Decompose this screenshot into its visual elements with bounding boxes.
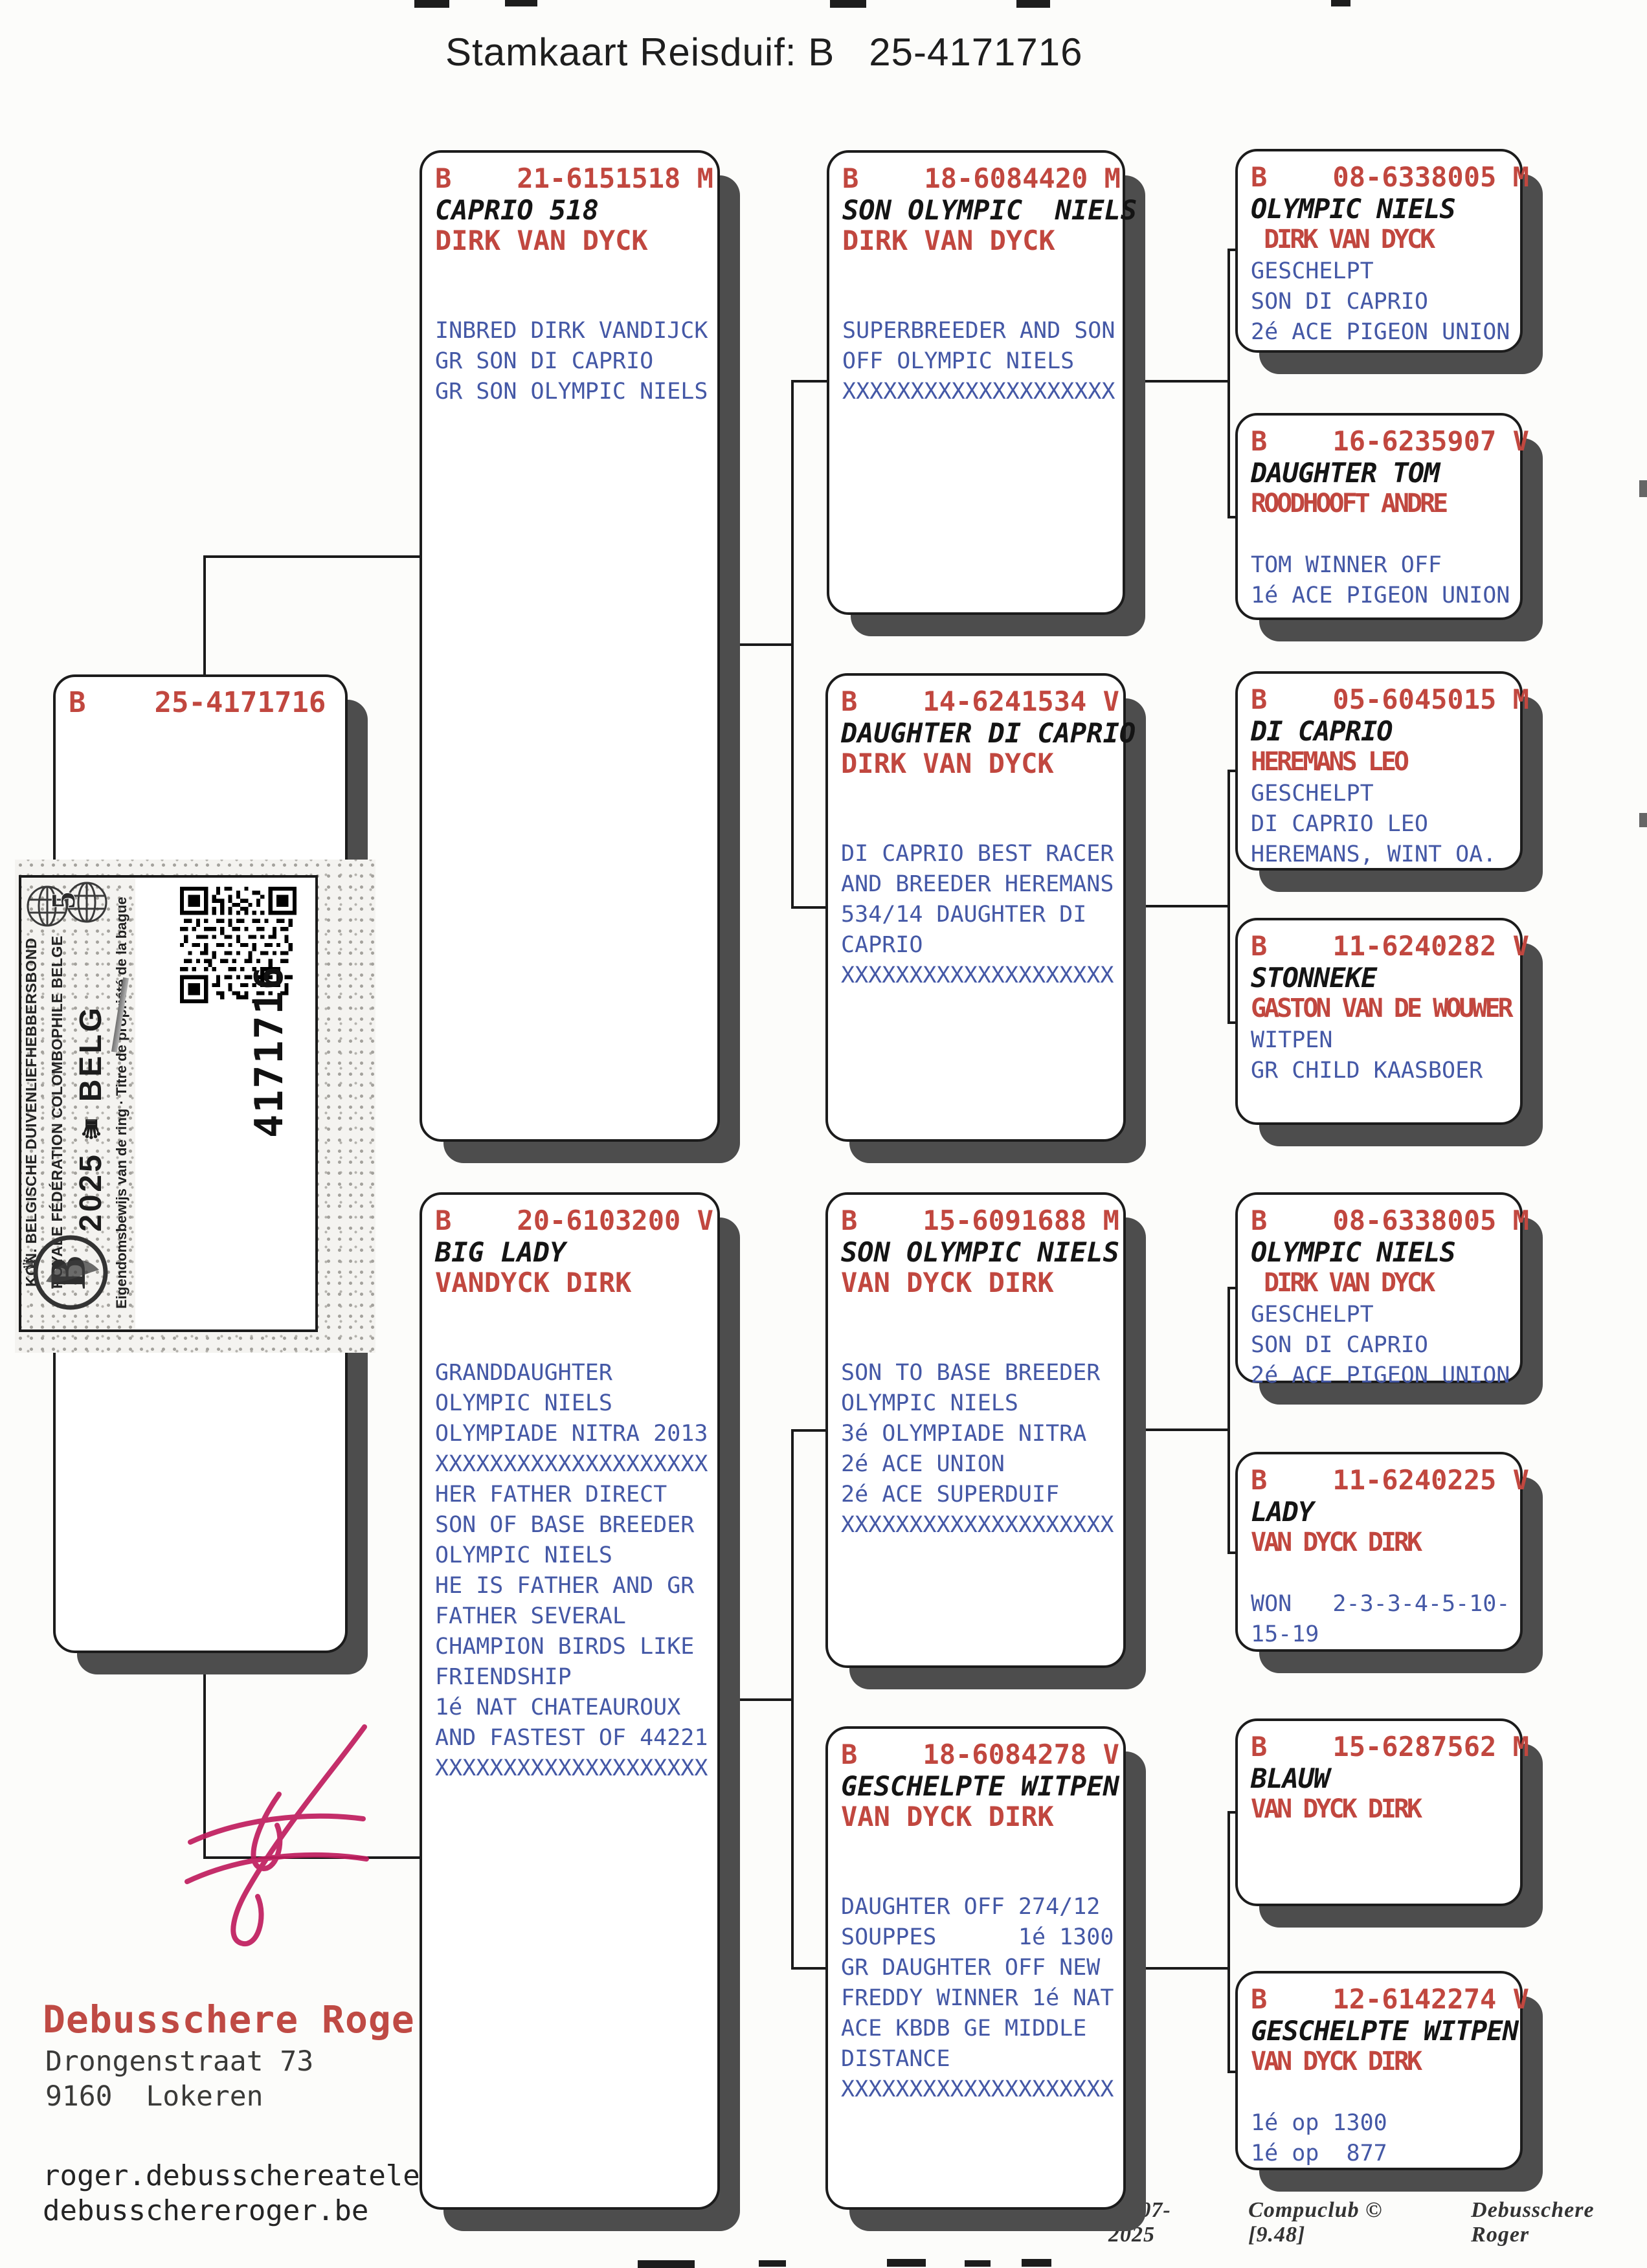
ring-number: B 14-6241534 V — [841, 685, 1110, 718]
scan-artifact — [830, 0, 866, 8]
connector-line — [1227, 770, 1230, 1024]
pigeon-name: SON OLYMPIC NIELS — [841, 1238, 1110, 1267]
ring-number: B 08-6338005 M — [1251, 161, 1507, 194]
pigeon-notes: INBRED DIRK VANDIJCK GR SON DI CAPRIO GR… — [435, 316, 704, 407]
fancier-name: GASTON VAN DE WOUWER — [1251, 993, 1507, 1024]
connector-line — [791, 1429, 794, 1970]
scan-artifact — [1022, 2259, 1051, 2267]
connector-line — [1227, 249, 1230, 518]
pigeon-notes: DAUGHTER OFF 274/12 SOUPPES 1é 1300 GR D… — [841, 1892, 1110, 2105]
fancier-name: VAN DYCK DIRK — [1251, 2046, 1507, 2077]
owner-street: Drongenstraat 73 — [45, 2045, 313, 2078]
pedigree-box-ggp8: B 12-6142274 V GESCHELPTE WITPEN VAN DYC… — [1235, 1971, 1523, 2170]
pedigree-box-ggp1: B 08-6338005 M OLYMPIC NIELS DIRK VAN DY… — [1235, 149, 1523, 353]
ring-number: B 05-6045015 M — [1251, 683, 1507, 717]
fancier-name: VAN DYCK DIRK — [1251, 1527, 1507, 1558]
federation-b-roundel-icon: B ♛ — [20, 1219, 111, 1323]
fancier-name: ROODHOOFT ANDRE — [1251, 488, 1507, 519]
scan-artifact — [965, 2260, 991, 2267]
fancier-name: VAN DYCK DIRK — [841, 1267, 1110, 1298]
pigeon-notes: 1é op 1300 1é op 877 — [1251, 2108, 1507, 2169]
pigeon-name: DI CAPRIO — [1251, 717, 1507, 746]
pigeon-notes: WON 2-3-3-4-5-10- 15-19 — [1251, 1589, 1507, 1650]
pigeon-notes: SUPERBREEDER AND SON OFF OLYMPIC NIELS X… — [842, 316, 1110, 407]
ring-number-vertical: 4171716 — [247, 976, 292, 1138]
connector-line — [791, 1967, 828, 1970]
scan-artifact — [414, 0, 449, 8]
ring-number: B 16-6235907 V — [1251, 425, 1507, 458]
pigeon-name: STONNEKE — [1251, 963, 1507, 993]
pedigree-box-ggp6: B 11-6240225 V LADY VAN DYCK DIRK WON 2-… — [1235, 1452, 1523, 1652]
svg-text:5: 5 — [45, 892, 82, 909]
pigeon-notes: DI CAPRIO BEST RACER AND BREEDER HEREMAN… — [841, 839, 1110, 991]
fancier-name: DIRK VAN DYCK — [1251, 1267, 1507, 1298]
crown-icon: ♛ — [77, 1102, 106, 1152]
pigeon-name: SON OLYMPIC NIELS — [842, 195, 1110, 225]
pedigree-box-ggp4: B 11-6240282 V STONNEKE GASTON VAN DE WO… — [1235, 918, 1523, 1125]
ring-number: B 20-6103200 V — [435, 1204, 704, 1238]
fancier-name: DIRK VAN DYCK — [1251, 224, 1507, 255]
fancier-name: DIRK VAN DYCK — [841, 748, 1110, 779]
owner-city: 9160 Lokeren — [45, 2080, 263, 2113]
fancier-name: DIRK VAN DYCK — [842, 225, 1110, 256]
ownership-text: Eigendomsbewijs van de ring · Titre de p… — [113, 883, 135, 1323]
stamkaart-page: { "title": "Stamkaart Reisduif: B 25-417… — [0, 0, 1647, 2268]
pedigree-box-grandsire-maternal: B 15-6091688 M SON OLYMPIC NIELS VAN DYC… — [825, 1192, 1126, 1668]
connector-line — [1227, 1287, 1230, 1554]
pedigree-box-mother: B 20-6103200 V BIG LADY VANDYCK DIRK GRA… — [420, 1192, 720, 2210]
ring-number: B 11-6240282 V — [1251, 929, 1507, 963]
scan-artifact — [1639, 813, 1647, 827]
fancier-name: DIRK VAN DYCK — [435, 225, 704, 256]
scan-artifact — [638, 2260, 695, 2268]
connector-line — [1125, 380, 1230, 383]
pedigree-box-granddam-maternal: B 18-6084278 V GESCHELPTE WITPEN VAN DYC… — [825, 1726, 1126, 2210]
ring-number: B 11-6240225 V — [1251, 1463, 1507, 1497]
pedigree-box-ggp7: B 15-6287562 M BLAUW VAN DYCK DIRK — [1235, 1718, 1523, 1906]
ring-number: B 18-6084420 M — [842, 162, 1110, 195]
printed-by: Debusschere Roger — [1471, 2198, 1647, 2247]
software-credit: Compuclub © [9.48] — [1248, 2198, 1433, 2247]
pigeon-name: OLYMPIC NIELS — [1251, 194, 1507, 224]
fancier-name: VAN DYCK DIRK — [1251, 1794, 1507, 1825]
pigeon-name: BIG LADY — [435, 1238, 704, 1267]
connector-line — [1126, 1429, 1230, 1431]
ring-number: B 25-4171716 — [69, 686, 332, 720]
pigeon-notes: WITPEN GR CHILD KAASBOER — [1251, 1025, 1507, 1086]
pigeon-notes: TOM WINNER OFF 1é ACE PIGEON UNION — [1251, 550, 1507, 611]
pigeon-notes: SON TO BASE BREEDER OLYMPIC NIELS 3é OLY… — [841, 1358, 1110, 1540]
connector-line — [791, 380, 828, 383]
pigeon-name: LADY — [1251, 1497, 1507, 1527]
page-title: Stamkaart Reisduif: B 25-4171716 — [445, 30, 1083, 74]
connector-line — [203, 555, 422, 558]
ring-ownership-sticker: 5 KON. BELGISCHE DUIVENLIEFHEBBERSBOND R… — [15, 860, 375, 1353]
connector-line — [791, 906, 828, 909]
pedigree-box-father: B 21-6151518 M CAPRIO 518 DIRK VAN DYCK … — [420, 150, 720, 1142]
connector-line — [1126, 1967, 1230, 1970]
pigeon-name: GESCHELPTE WITPEN — [841, 1772, 1110, 1801]
connector-line — [1126, 905, 1230, 907]
footer: 24-07-2025 Compuclub © [9.48] Debusscher… — [1108, 2198, 1647, 2247]
ring-number: B 21-6151518 M — [435, 162, 704, 195]
scan-artifact — [1331, 0, 1350, 6]
owner-name: Debusschere Roger — [43, 1997, 438, 2041]
connector-line — [720, 1698, 794, 1701]
ring-number: B 15-6287562 M — [1251, 1730, 1507, 1764]
pigeon-name: DAUGHTER TOM — [1251, 458, 1507, 488]
pigeon-name: CAPRIO 518 — [435, 195, 704, 225]
pedigree-box-ggp5: B 08-6338005 M OLYMPIC NIELS DIRK VAN DY… — [1235, 1192, 1523, 1383]
pedigree-box-ggp2: B 16-6235907 V DAUGHTER TOM ROODHOOFT AN… — [1235, 413, 1523, 620]
scan-artifact — [1016, 0, 1050, 8]
fancier-name: HEREMANS LEO — [1251, 746, 1507, 777]
ring-number: B 15-6091688 M — [841, 1204, 1110, 1238]
pigeon-notes: GESCHELPT SON DI CAPRIO 2é ACE PIGEON UN… — [1251, 256, 1507, 348]
pedigree-box-grandsire-paternal: B 18-6084420 M SON OLYMPIC NIELS DIRK VA… — [827, 150, 1125, 615]
scan-artifact — [887, 2259, 926, 2267]
connector-line — [1227, 1811, 1230, 2073]
ring-number: B 18-6084278 V — [841, 1738, 1110, 1772]
connector-line — [791, 1429, 828, 1432]
pigeon-name: BLAUW — [1251, 1764, 1507, 1794]
pigeon-name: OLYMPIC NIELS — [1251, 1238, 1507, 1267]
pigeon-notes: GESCHELPT SON DI CAPRIO 2é ACE PIGEON UN… — [1251, 1300, 1507, 1391]
connector-line — [791, 380, 794, 909]
print-date: 24-07-2025 — [1108, 2198, 1211, 2247]
pedigree-box-ggp3: B 05-6045015 M DI CAPRIO HEREMANS LEO GE… — [1235, 671, 1523, 871]
ring-number: B 12-6142274 V — [1251, 1983, 1507, 2016]
scan-artifact — [1639, 480, 1647, 497]
ring-number: B 08-6338005 M — [1251, 1204, 1507, 1238]
owner-website: debusschereroger.be — [43, 2194, 368, 2227]
scan-artifact — [759, 2260, 786, 2267]
pigeon-name: DAUGHTER DI CAPRIO — [841, 718, 1110, 748]
pigeon-notes: GESCHELPT DI CAPRIO LEO HEREMANS, WINT O… — [1251, 779, 1507, 870]
country-code: BELG — [74, 1005, 108, 1102]
connector-line — [203, 1856, 422, 1859]
scan-artifact — [505, 0, 537, 6]
fancier-name: VANDYCK DIRK — [435, 1267, 704, 1298]
connector-line — [720, 643, 794, 646]
svg-text:♛: ♛ — [20, 1255, 42, 1273]
pigeon-name: GESCHELPTE WITPEN — [1251, 2016, 1507, 2046]
pigeon-notes: GRANDDAUGHTER OLYMPIC NIELS OLYMPIADE NI… — [435, 1358, 704, 1784]
pedigree-box-granddam-paternal: B 14-6241534 V DAUGHTER DI CAPRIO DIRK V… — [825, 673, 1126, 1142]
fancier-name: VAN DYCK DIRK — [841, 1801, 1110, 1832]
